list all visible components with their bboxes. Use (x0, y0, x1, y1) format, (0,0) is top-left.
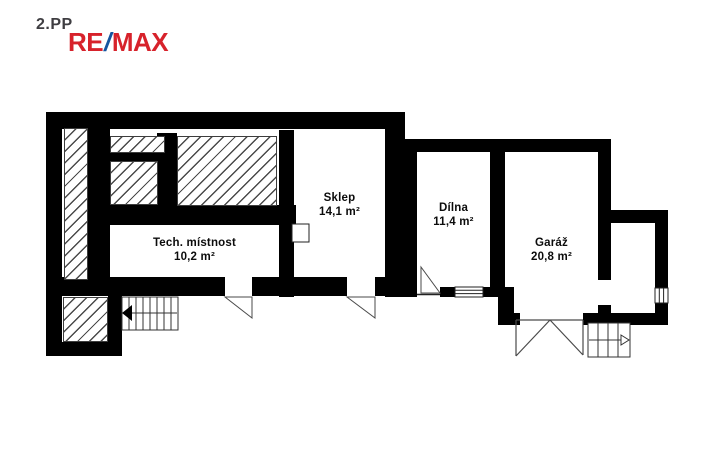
stairs-left (122, 297, 178, 330)
room-label-dilna: Dílna 11,4 m² (417, 201, 490, 229)
door-swing-tech-icon (225, 297, 252, 318)
window-dilna-icon (455, 287, 483, 297)
floorplan-canvas: 2.PP RE/MAX (0, 0, 702, 468)
room-name: Sklep (294, 191, 385, 205)
window-extension-icon (655, 288, 668, 303)
plan-symbols (0, 0, 702, 468)
door-swing-sklep-icon (347, 297, 375, 318)
stairs-right (588, 323, 630, 357)
room-label-tech: Tech. místnost 10,2 m² (110, 236, 279, 264)
room-label-garaz: Garáž 20,8 m² (505, 236, 598, 264)
room-label-sklep: Sklep 14,1 m² (294, 191, 385, 219)
room-name: Garáž (505, 236, 598, 250)
chimney-square-icon (292, 224, 309, 242)
room-name: Tech. místnost (110, 236, 279, 250)
room-area: 11,4 m² (417, 215, 490, 229)
room-name: Dílna (417, 201, 490, 215)
room-area: 20,8 m² (505, 250, 598, 264)
door-swing-dilna-icon (421, 267, 440, 293)
room-area: 14,1 m² (294, 205, 385, 219)
garage-door-icon (516, 320, 583, 356)
room-area: 10,2 m² (110, 250, 279, 264)
